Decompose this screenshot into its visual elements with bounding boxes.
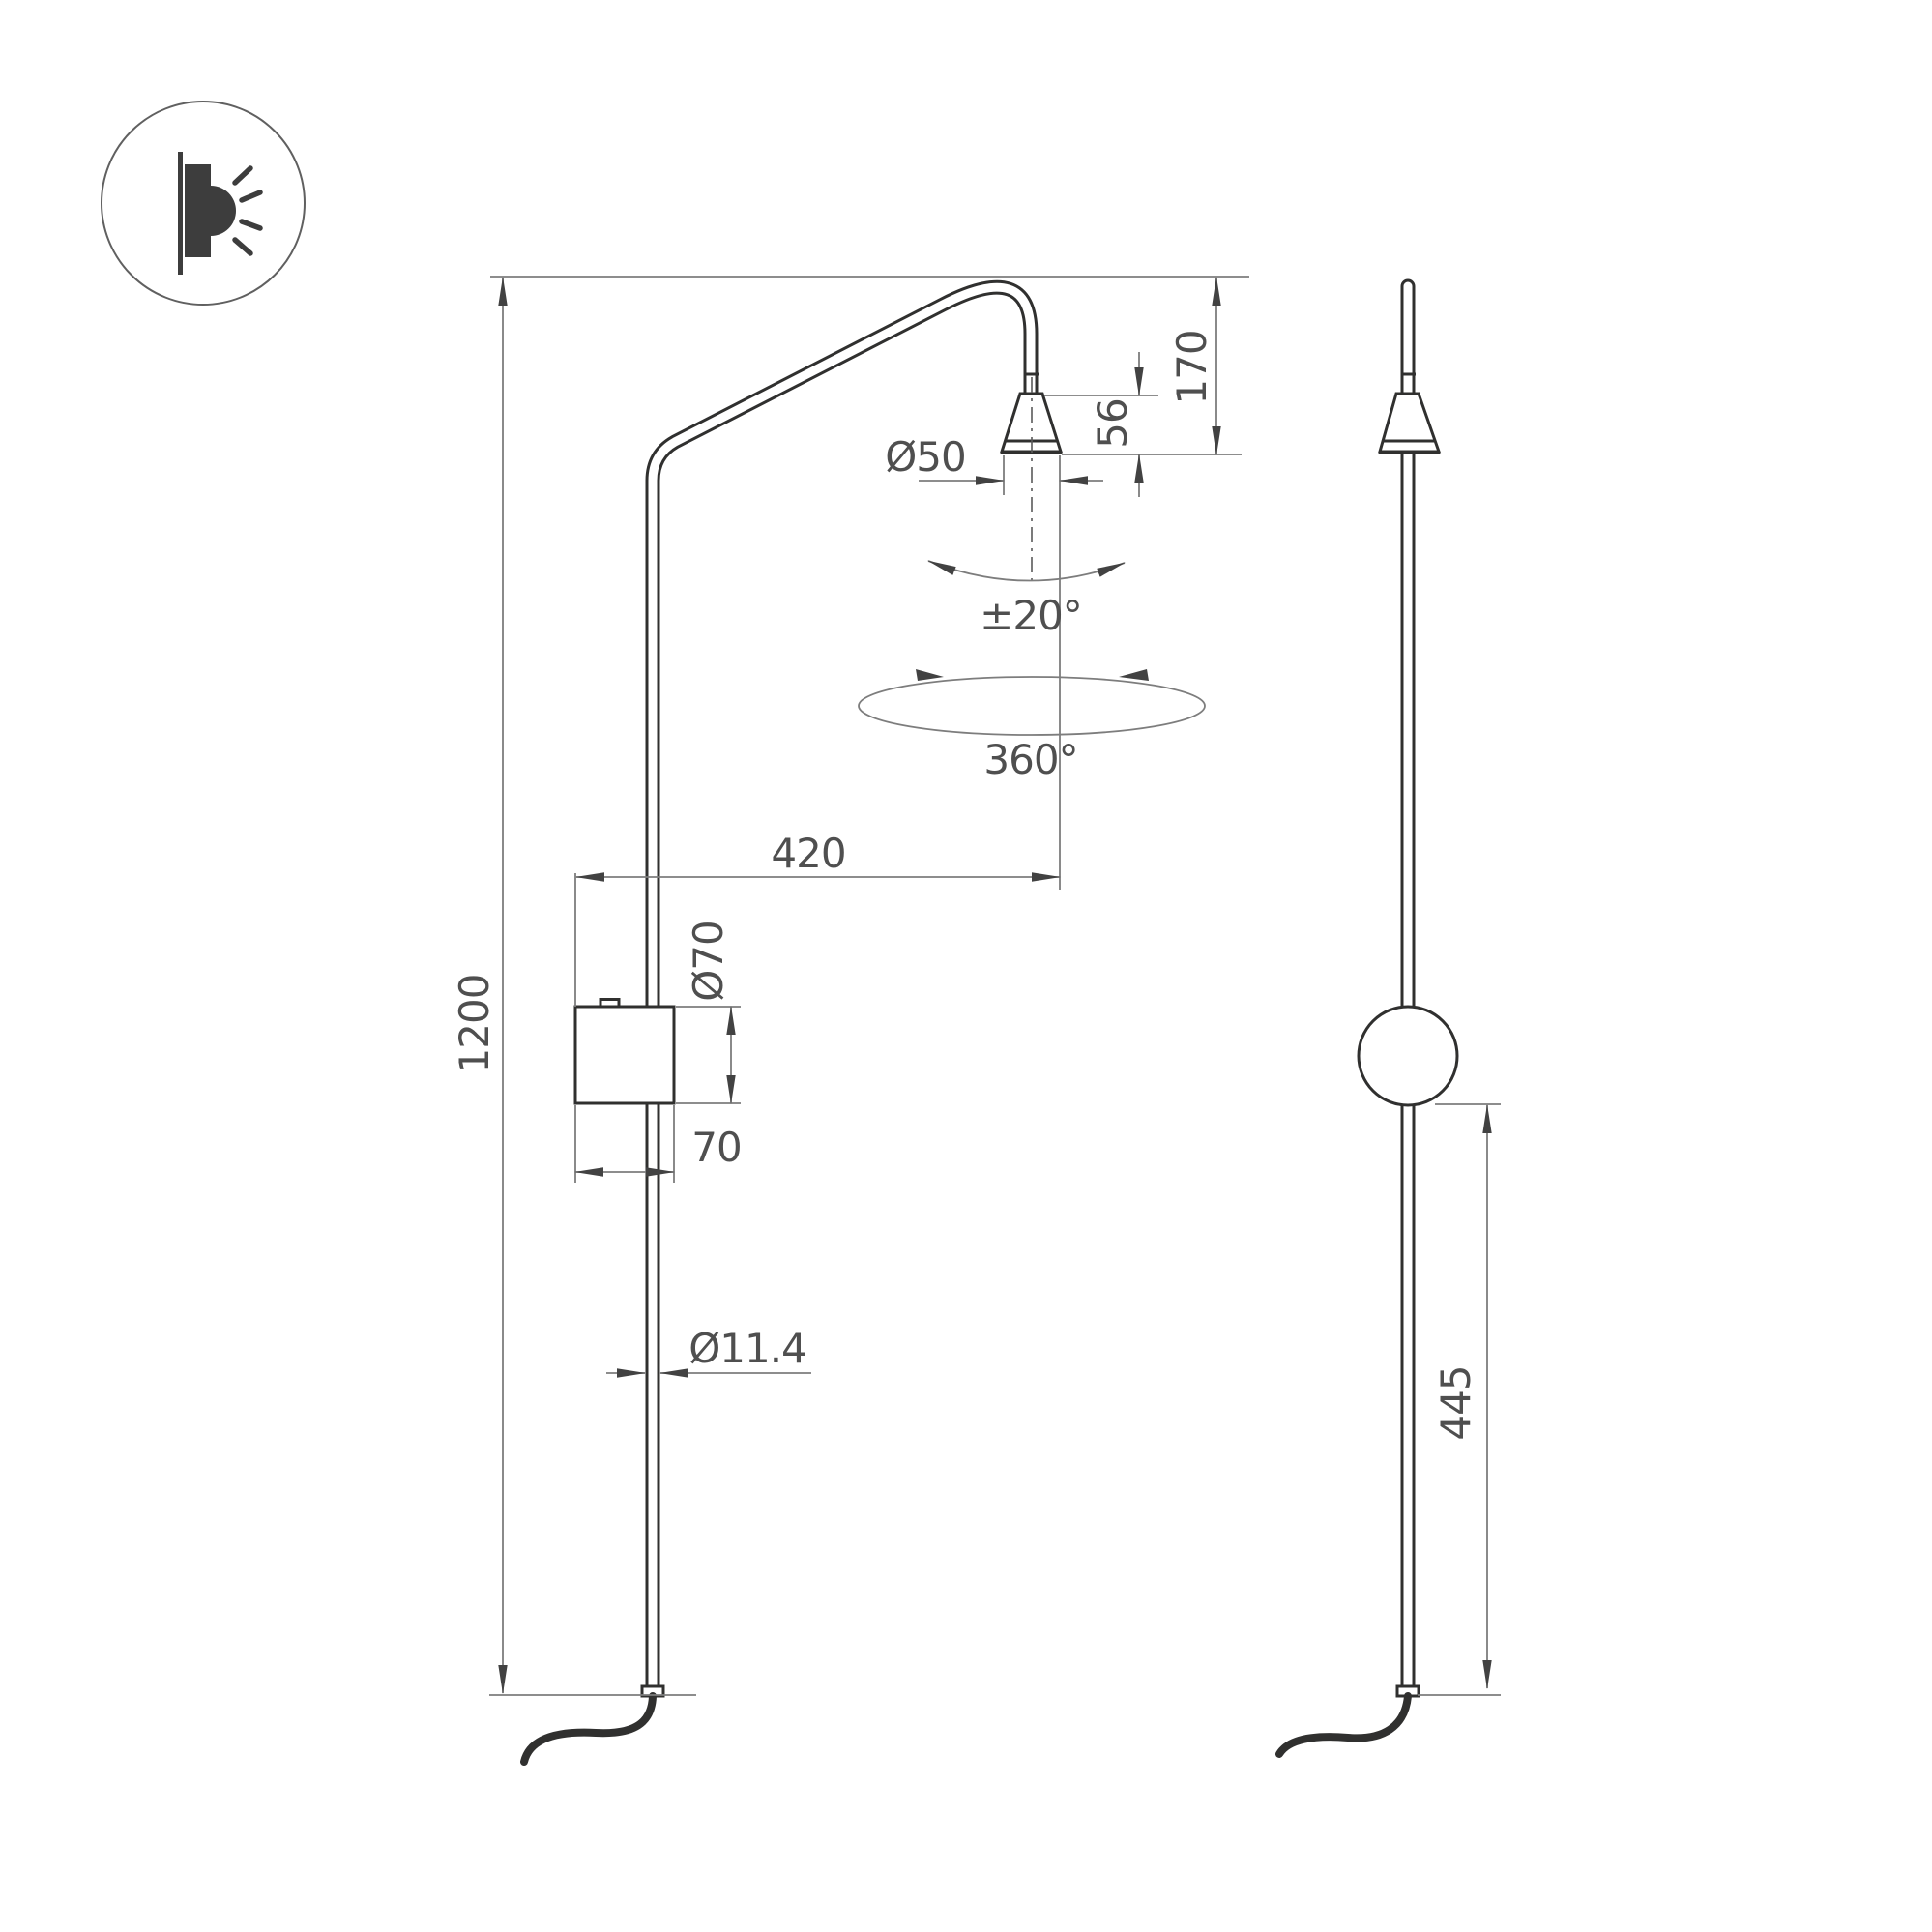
side-power-cable <box>1279 1696 1408 1754</box>
rotation-arrow-left <box>916 669 944 681</box>
dim-label-d50: Ø50 <box>885 433 966 481</box>
dim-label-420: 420 <box>771 830 845 877</box>
dim-label-56: 56 <box>1089 398 1136 448</box>
extension-lines <box>489 277 1501 1695</box>
dimension-drawing: 1200 420 Ø50 56 170 ±20° <box>0 0 1932 1932</box>
rotation-arrow-right <box>1119 669 1149 681</box>
dim-lower-section: 445 <box>1432 1105 1487 1688</box>
front-view <box>524 287 1062 1762</box>
icon-wall-line <box>178 152 183 275</box>
dim-label-170: 170 <box>1168 330 1215 404</box>
dim-label-445: 445 <box>1432 1365 1479 1440</box>
dim-label-1200: 1200 <box>451 975 498 1074</box>
side-view <box>1279 286 1457 1754</box>
front-mount-box-tab <box>600 1000 619 1008</box>
dim-overall-height: 1200 <box>451 278 503 1693</box>
dim-head-height: 56 <box>1089 352 1139 497</box>
icon-lamp-body <box>185 164 211 257</box>
dimensions: 1200 420 Ø50 56 170 ±20° <box>451 277 1501 1695</box>
dim-canopy-diameter: Ø70 <box>685 921 732 1103</box>
dim-label-d11-4: Ø11.4 <box>688 1325 806 1372</box>
wall-light-icon <box>102 102 305 305</box>
dim-head-diameter: Ø50 <box>885 433 1103 481</box>
side-head-cone <box>1380 394 1439 452</box>
drawing-svg: 1200 420 Ø50 56 170 ±20° <box>0 0 1932 1932</box>
front-power-cable <box>524 1696 653 1762</box>
front-mount-box <box>575 1007 674 1103</box>
dim-label-rotation: 360° <box>983 736 1077 783</box>
dim-label-70: 70 <box>691 1124 741 1171</box>
dim-label-tilt: ±20° <box>980 592 1082 639</box>
dim-rotation-range: 360° <box>859 669 1205 783</box>
dim-tube-diameter: Ø11.4 <box>606 1325 811 1373</box>
side-mount-disc <box>1359 1007 1457 1105</box>
dim-label-d70: Ø70 <box>685 921 732 1002</box>
dim-head-offset: 170 <box>1168 278 1216 454</box>
